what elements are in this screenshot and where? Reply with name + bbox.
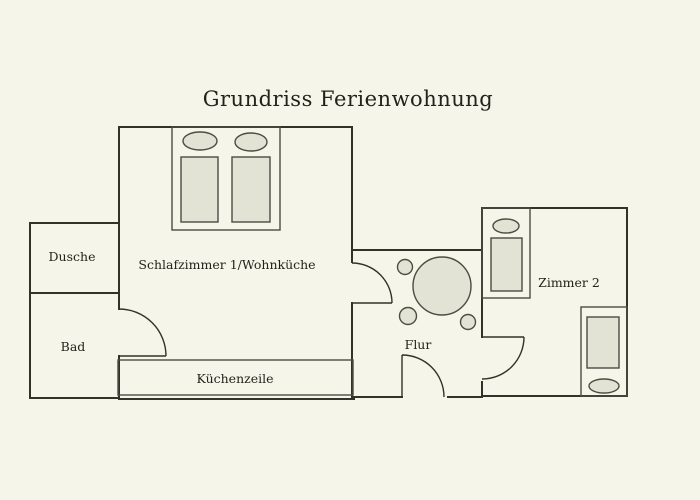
single-bed-top	[482, 208, 530, 298]
single-bed-bottom	[581, 307, 627, 396]
double-bed	[172, 127, 280, 230]
room-flur: Flur	[352, 250, 482, 397]
kitchenette-label: Küchenzeile	[197, 371, 274, 386]
zimmer2-label: Zimmer 2	[538, 275, 600, 290]
page-title: Grundriss Ferienwohnung	[203, 87, 494, 111]
single-bed-bottom-pillow	[589, 379, 619, 393]
room-bad: Bad	[30, 309, 166, 398]
pillow-right	[235, 133, 267, 151]
round-table	[413, 257, 471, 315]
mattress-right	[232, 157, 270, 222]
stool-top	[398, 260, 413, 275]
main-room-to-flur-door	[352, 263, 392, 303]
dusche-label: Dusche	[49, 249, 96, 264]
single-bed-top-mattress	[491, 238, 522, 291]
room-schlafzimmer-wohnkueche: Küchenzeile Schlafzimmer 1/Wohnküche	[118, 127, 354, 399]
mattress-left	[181, 157, 218, 222]
flur-entrance-door	[402, 355, 444, 397]
flur-label: Flur	[405, 337, 432, 352]
bad-door	[119, 309, 166, 356]
single-bed-bottom-mattress	[587, 317, 619, 368]
round-table-group	[398, 257, 476, 330]
bedroom-living-label: Schlafzimmer 1/Wohnküche	[138, 257, 315, 272]
room-dusche: Dusche	[30, 223, 119, 398]
kitchenette-counter: Küchenzeile	[118, 360, 353, 395]
single-bed-top-pillow	[493, 219, 519, 233]
zimmer2-door	[482, 337, 524, 379]
pillow-left	[183, 132, 217, 150]
floorplan-svg: Grundriss Ferienwohnung Küchenzeile Schl…	[0, 0, 700, 500]
stool-bottom-right	[461, 315, 476, 330]
floorplan-page: Grundriss Ferienwohnung Küchenzeile Schl…	[0, 0, 700, 500]
bad-label: Bad	[61, 339, 86, 354]
room-zimmer2: Zimmer 2	[482, 208, 627, 397]
stool-bottom-left	[400, 308, 417, 325]
